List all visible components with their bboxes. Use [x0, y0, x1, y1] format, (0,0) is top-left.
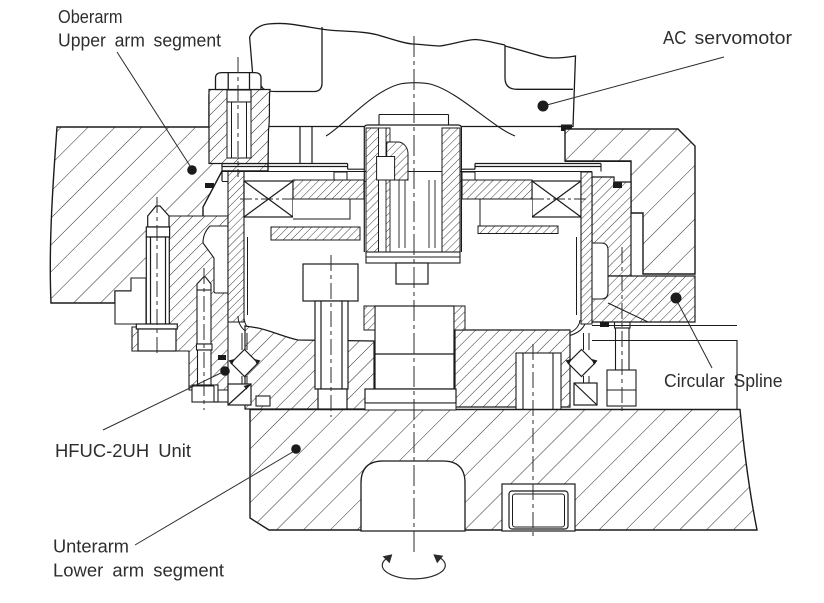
svg-text:Lower arm segment: Lower arm segment [53, 560, 224, 581]
svg-text:servomotor: servomotor [695, 27, 793, 48]
svg-text:Unterarm: Unterarm [53, 536, 129, 557]
svg-text:Oberarm: Oberarm [58, 6, 123, 27]
svg-text:HFUC-2UH Unit: HFUC-2UH Unit [55, 440, 191, 461]
svg-text:Upper arm segment: Upper arm segment [58, 30, 221, 51]
svg-text:AC: AC [663, 27, 687, 48]
svg-text:Circular Spline: Circular Spline [664, 370, 783, 391]
